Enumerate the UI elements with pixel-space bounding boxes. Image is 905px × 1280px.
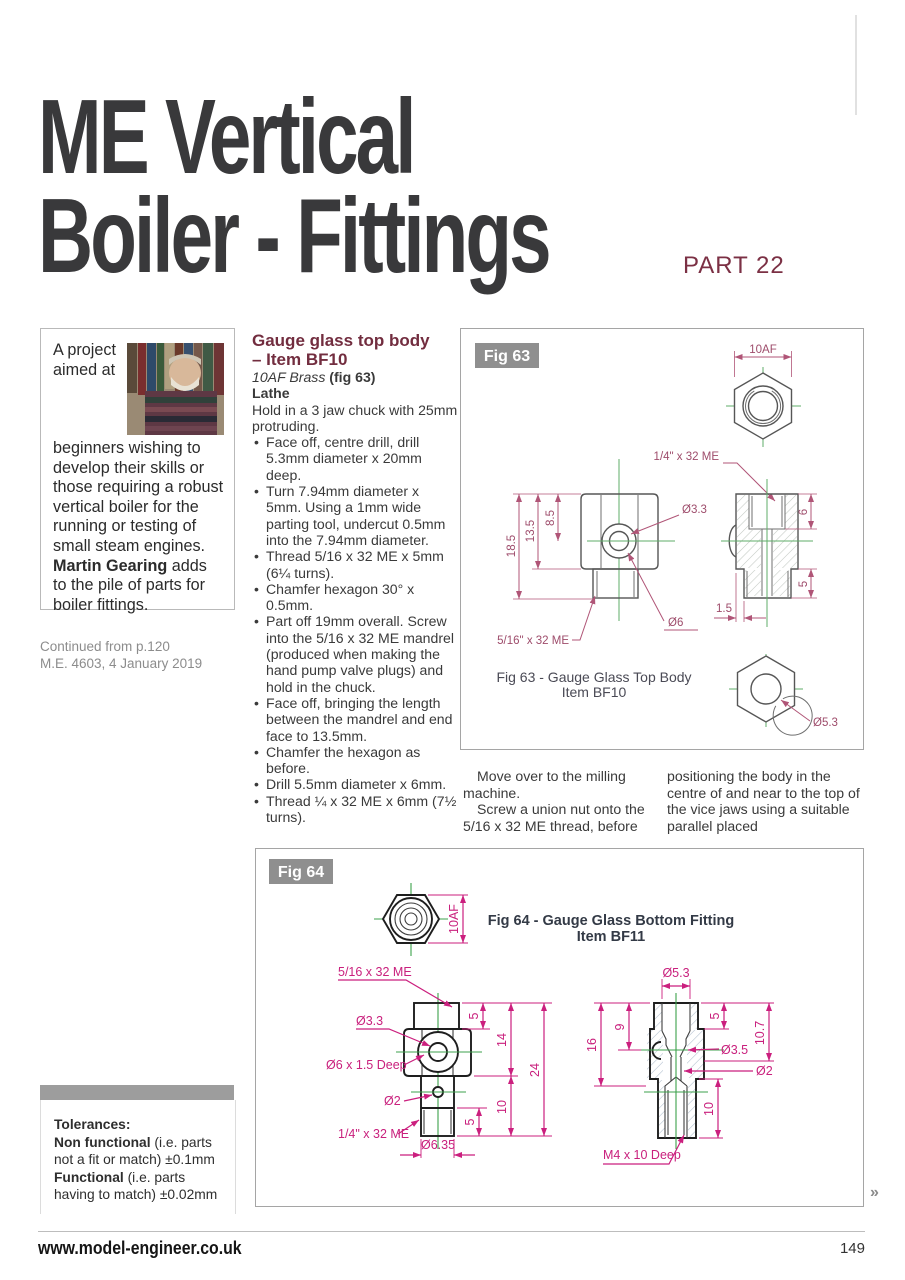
material-italic: 10AF Brass — [252, 369, 329, 385]
article-intro: Hold in a 3 jaw chuck with 25mm protrudi… — [252, 402, 458, 435]
machining-step: Turn 7.94mm diameter x 5mm. Using a 1mm … — [252, 483, 458, 548]
fig63-dim-5: 5 — [798, 581, 810, 587]
fig64-caption-line1: Fig 64 - Gauge Glass Bottom Fitting — [488, 913, 735, 929]
machining-step: Part off 19mm overall. Screw into the 5/… — [252, 613, 458, 694]
fig64-section-view: Ø5.3 16 9 5 10.7 Ø3.5 Ø2 10 M4 x 10 Deep — [585, 966, 774, 1164]
fig63-section-view: 6 5 1.5 — [714, 479, 817, 627]
fig63-caption-line2: Item BF10 — [562, 684, 627, 700]
tolerance-nonfunctional-label: Non functional — [54, 1135, 151, 1150]
fig64-dim-5right: 5 — [708, 1012, 722, 1019]
fig64-front-view: 5/16 x 32 ME Ø3.3 Ø6 x 1.5 Deep Ø2 1/4" … — [326, 965, 552, 1158]
continued-line2: M.E. 4603, 4 January 2019 — [40, 655, 202, 672]
machining-step: Face off, bringing the length between th… — [252, 695, 458, 744]
fig64-caption-line2: Item BF11 — [577, 929, 646, 945]
section-heading: Gauge glass top body – Item BF10 — [252, 331, 458, 369]
fig63-ann-d53: Ø5.3 — [813, 717, 838, 729]
section-heading-line2: – Item BF10 — [252, 350, 347, 369]
fig63-dim-85: 8.5 — [545, 510, 557, 526]
tolerance-functional-label: Functional — [54, 1170, 124, 1185]
article-column: Gauge glass top body – Item BF10 10AF Br… — [252, 331, 458, 825]
machining-step: Chamfer hexagon 30° x 0.5mm. — [252, 581, 458, 614]
body-text-column-right: positioning the body in the centre of an… — [667, 768, 864, 834]
page-title-line1: ME Vertical — [38, 88, 549, 187]
fig64-dim-9: 9 — [613, 1023, 627, 1030]
machining-steps: Face off, centre drill, drill 5.3mm diam… — [252, 434, 458, 825]
fig63-label: Fig 63 — [484, 348, 530, 365]
author-photo — [127, 343, 224, 435]
fig64-dim-10-left: 10 — [495, 1100, 509, 1114]
fig64-drawing: Fig 64 10AF Fig 64 - Gauge Glass Bottom … — [256, 849, 861, 1204]
tolerances-box: Tolerances: Non functional (i.e. parts n… — [40, 1100, 236, 1214]
paragraph: Move over to the milling machine. — [463, 768, 660, 801]
page-number: 149 — [822, 1240, 865, 1257]
fig64-dim-5bot: 5 — [463, 1118, 477, 1125]
fig63-dim-185: 18.5 — [506, 535, 518, 557]
fig63-ann-d33: Ø3.3 — [682, 504, 707, 516]
fig63-dim-6: 6 — [798, 509, 810, 515]
fig63-dim-135: 13.5 — [525, 520, 537, 542]
fig63-front-view: 18.5 13.5 8.5 Ø3.3 Ø6 5/16" x 32 ME — [497, 459, 707, 647]
fig63-bottom-view: Ø5.3 — [729, 654, 838, 735]
page-title: ME Vertical Boiler - Fittings — [38, 88, 549, 286]
fig64-ann-d6-deep: Ø6 x 1.5 Deep — [326, 1058, 407, 1072]
fig63-caption-line1: Fig 63 - Gauge Glass Top Body — [496, 669, 691, 685]
fig63-box: Fig 63 10AF 1/4" x 32 ME 18.5 13 — [460, 328, 864, 750]
footer-website-url: www.model-engineer.co.uk — [38, 1238, 242, 1259]
author-name: Martin Gearing — [53, 557, 167, 575]
footer-rule — [38, 1231, 865, 1232]
fig64-dim-d635: Ø6.35 — [421, 1138, 455, 1152]
continued-line1: Continued from p.120 — [40, 638, 202, 655]
fig63-dim-15: 1.5 — [716, 603, 732, 615]
fig63-ann-d6: Ø6 — [668, 617, 683, 629]
fig64-dim-5top: 5 — [467, 1012, 481, 1019]
fig64-top-view: 10AF — [374, 883, 468, 956]
machining-step: Thread ¼ x 32 ME x 6mm (7½ turns). — [252, 793, 458, 826]
fig64-box: Fig 64 10AF Fig 64 - Gauge Glass Bottom … — [255, 848, 864, 1207]
fig63-drawing: Fig 63 10AF 1/4" x 32 ME 18.5 13 — [461, 329, 861, 747]
page-title-line2: Boiler - Fittings — [38, 187, 549, 286]
fig64-label: Fig 64 — [278, 864, 324, 881]
fig64-dim-16: 16 — [585, 1038, 599, 1052]
fig63-ann-quarter-thread: 1/4" x 32 ME — [654, 451, 720, 463]
machining-step: Chamfer the hexagon as before. — [252, 744, 458, 777]
machining-step: Drill 5.5mm diameter x 6mm. — [252, 776, 458, 792]
fig64-dim-10af: 10AF — [447, 904, 461, 934]
fig64-dim-d53: Ø5.3 — [662, 966, 689, 980]
magazine-page: { "page": { "title_line1": "ME Vertical"… — [0, 0, 905, 1280]
material-fig-ref: (fig 63) — [329, 369, 375, 385]
paragraph: positioning the body in the centre of an… — [667, 768, 864, 834]
continued-from-note: Continued from p.120 M.E. 4603, 4 Januar… — [40, 638, 202, 672]
tolerances-heading: Tolerances: — [54, 1117, 130, 1132]
fig63-ann-516-thread: 5/16" x 32 ME — [497, 635, 569, 647]
machining-step: Thread 5/16 x 32 ME x 5mm (6¼ turns). — [252, 548, 458, 581]
column-divider-line — [855, 15, 857, 115]
fig64-ann-d2-left: Ø2 — [384, 1094, 401, 1108]
fig63-dim-10af: 10AF — [749, 344, 777, 356]
fig64-dim-10-right: 10 — [702, 1102, 716, 1116]
fig64-dim-24: 24 — [528, 1063, 542, 1077]
intro-box: A project aimed at beginners wishing to … — [40, 328, 235, 610]
fig64-ann-d35: Ø3.5 — [721, 1043, 748, 1057]
fig64-ann-m4: M4 x 10 Deep — [603, 1148, 681, 1162]
machining-step: Face off, centre drill, drill 5.3mm diam… — [252, 434, 458, 483]
body-text-column-left: Move over to the milling machine. Screw … — [463, 768, 660, 834]
fig64-ann-d2-right: Ø2 — [756, 1064, 773, 1078]
fig64-dim-14: 14 — [495, 1033, 509, 1047]
material-line: 10AF Brass (fig 63) — [252, 369, 458, 385]
continued-chevrons-icon: » — [870, 1184, 877, 1202]
tolerances-header-bar — [40, 1085, 234, 1100]
part-label: PART 22 — [683, 252, 785, 280]
fig64-ann-516-thread: 5/16 x 32 ME — [338, 965, 412, 979]
fig64-dim-107: 10.7 — [753, 1021, 767, 1045]
fig64-ann-d33: Ø3.3 — [356, 1014, 383, 1028]
fig63-top-view: 10AF — [726, 344, 801, 447]
tool-subheading: Lathe — [252, 385, 458, 401]
section-heading-line1: Gauge glass top body — [252, 331, 430, 350]
paragraph: Screw a union nut onto the 5/16 x 32 ME … — [463, 801, 660, 834]
